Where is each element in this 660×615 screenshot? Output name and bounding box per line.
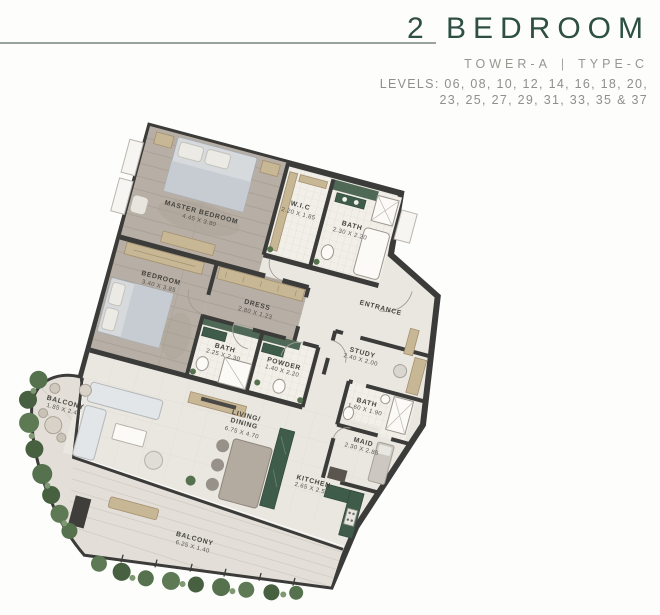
floorplan-page: { "header": { "title": "2 BEDROOM", "tow… bbox=[0, 0, 660, 615]
floor-plan: MASTER BEDROOM 4.45 X 3.80 W.I.C 2.20 X … bbox=[0, 0, 660, 615]
